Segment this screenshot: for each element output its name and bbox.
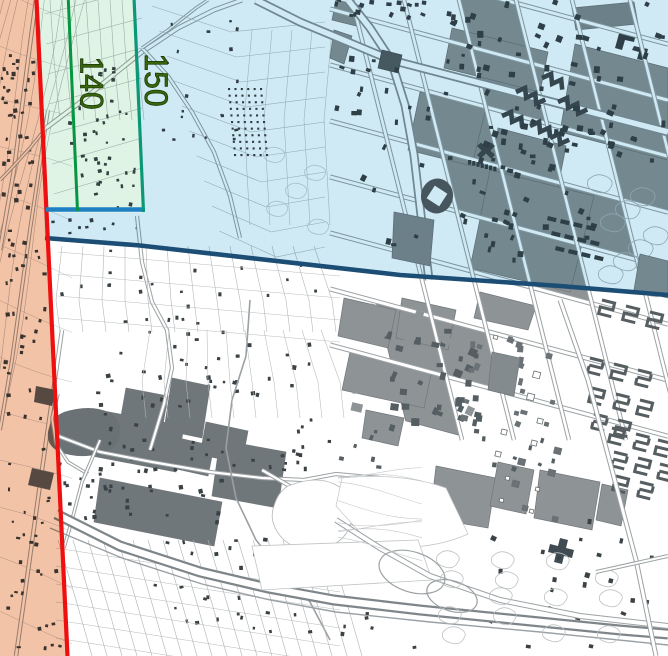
svg-text:140: 140 (74, 56, 110, 109)
svg-text:150: 150 (138, 53, 174, 106)
